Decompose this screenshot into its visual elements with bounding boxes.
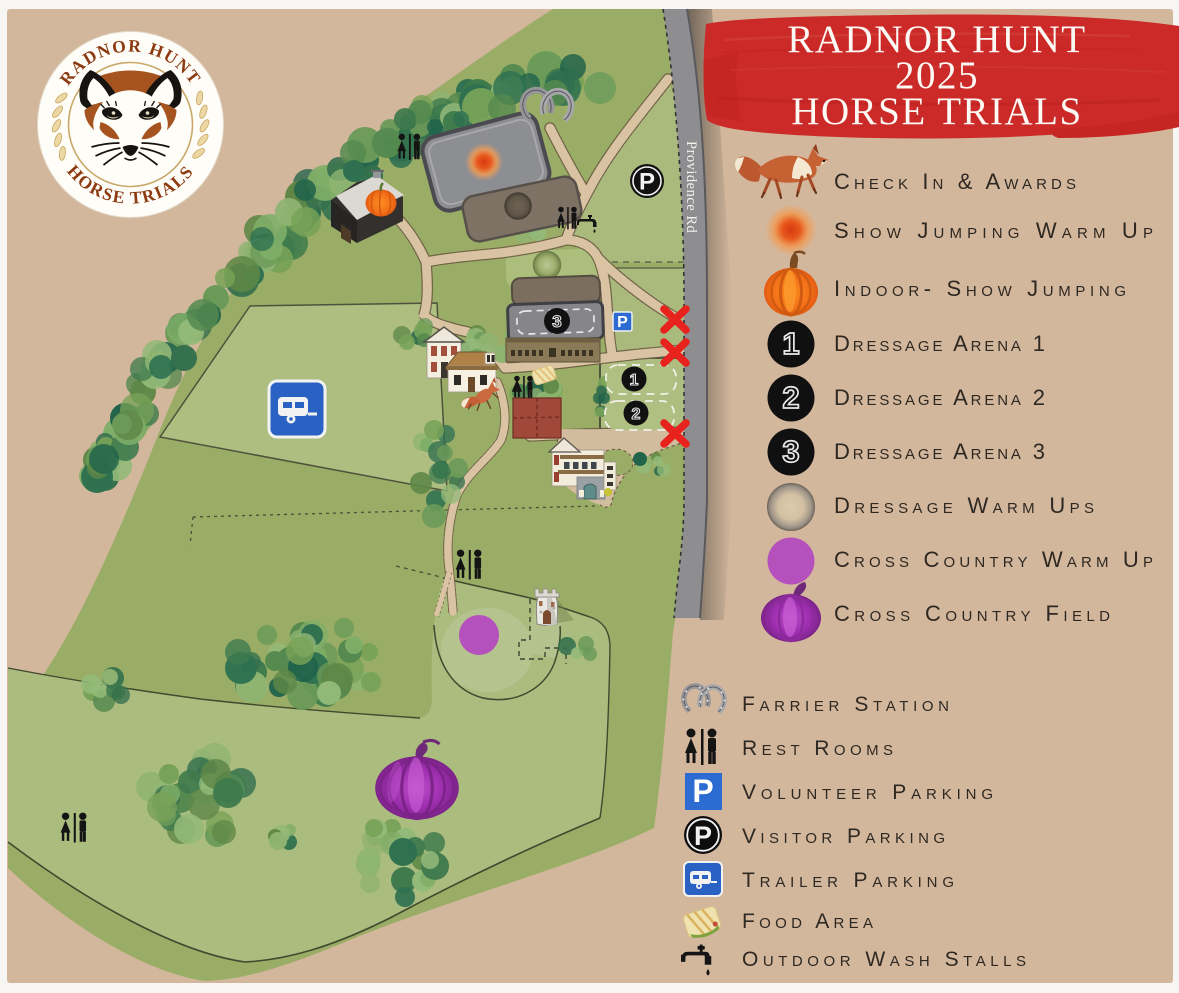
svg-text:3: 3 [782, 434, 799, 469]
svg-text:3: 3 [552, 312, 561, 331]
svg-text:2: 2 [632, 406, 641, 423]
svg-text:Indoor- Show Jumping: Indoor- Show Jumping [834, 276, 1128, 301]
svg-text:Dressage Arena 3: Dressage Arena 3 [834, 439, 1047, 464]
svg-text:1: 1 [630, 372, 639, 389]
svg-text:Dressage Arena 1: Dressage Arena 1 [834, 331, 1047, 356]
svg-text:Show Jumping Warm Up: Show Jumping Warm Up [834, 218, 1155, 243]
svg-text:1: 1 [782, 326, 799, 361]
svg-text:HORSE TRIALS: HORSE TRIALS [791, 90, 1082, 133]
svg-text:2: 2 [782, 380, 799, 415]
svg-text:Volunteer Parking: Volunteer Parking [742, 781, 995, 804]
svg-text:P: P [639, 169, 655, 196]
svg-text:Dressage Warm Ups: Dressage Warm Ups [834, 493, 1096, 518]
svg-text:P: P [692, 773, 713, 809]
svg-text:P: P [617, 314, 628, 331]
svg-text:Food Area: Food Area [742, 910, 875, 933]
svg-text:Cross Country Warm Up: Cross Country Warm Up [834, 547, 1155, 572]
svg-text:P: P [694, 821, 712, 851]
svg-text:Providence Rd: Providence Rd [683, 141, 699, 234]
svg-text:Outdoor Wash Stalls: Outdoor Wash Stalls [742, 948, 1028, 971]
svg-text:Rest Rooms: Rest Rooms [742, 737, 895, 760]
svg-text:Dressage Arena 2: Dressage Arena 2 [834, 385, 1047, 410]
